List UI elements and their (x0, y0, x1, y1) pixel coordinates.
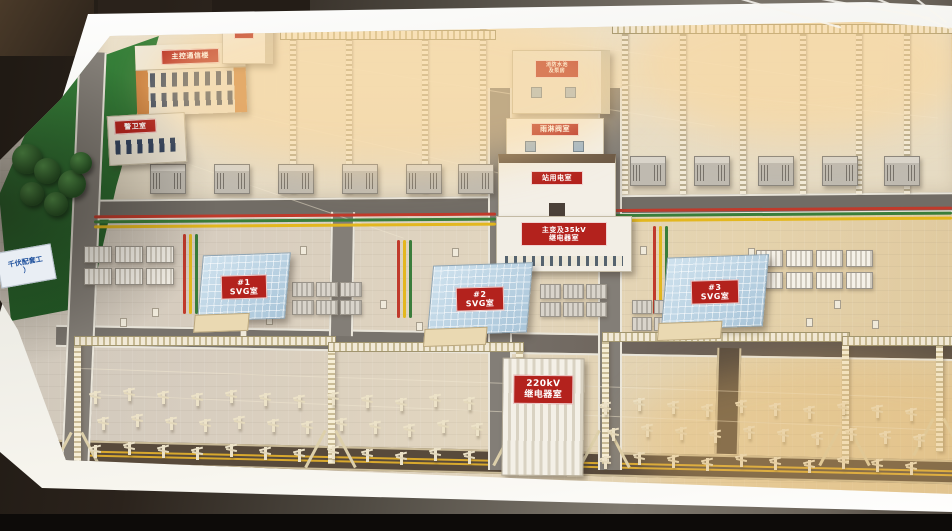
insulator-stand (374, 421, 377, 434)
insulator-stand (442, 420, 445, 433)
vertical-bus-green (409, 240, 412, 318)
insulator-stand (850, 428, 853, 441)
transformer-unit (342, 164, 378, 194)
door (549, 203, 565, 217)
building-svg-3: #3 SVG室 (661, 254, 769, 330)
insulator-stand (816, 432, 819, 445)
insulator-stand (910, 408, 913, 421)
vertical-bus-yellow (189, 234, 192, 314)
equipment-cabinet (152, 308, 159, 317)
insulator-stand (808, 406, 811, 419)
insulator-stand (128, 442, 131, 455)
vertical-bus-red (183, 234, 186, 314)
capacitor-rack (146, 268, 174, 285)
insulator-stand (264, 447, 267, 460)
insulator-stand (162, 445, 165, 458)
sign-220kv-line1: 220kV (526, 379, 560, 390)
insulator-stand (196, 447, 199, 460)
capacitor-rack (115, 268, 143, 285)
sign-svg1-line1: #1 (237, 278, 251, 288)
insulator-stand (638, 398, 641, 411)
insulator-stand (884, 431, 887, 444)
transformer-unit (214, 164, 250, 194)
insulator-stand (306, 421, 309, 434)
road-mid-connector (329, 212, 355, 336)
insulator-stand (638, 452, 641, 465)
gantry-post (74, 338, 81, 466)
capacitor-rack (586, 302, 607, 317)
project-nameplate-line2: ） (23, 265, 31, 274)
building-guard-room: 警卫室 (107, 112, 188, 166)
insulator-stand (238, 416, 241, 429)
insulator-stand (340, 418, 343, 431)
insulator-stand (230, 444, 233, 457)
tree (34, 158, 60, 184)
capacitor-rack (340, 300, 362, 315)
capacitor-rack (84, 246, 112, 263)
capacitor-rack (786, 250, 813, 267)
transformer-unit (458, 164, 494, 194)
building-fire-pool-pump: 消防水池 及泵房 (512, 50, 610, 114)
building-svg-2: #2 SVG室 (427, 262, 533, 336)
transformer-unit (822, 156, 858, 186)
insulator-stand (706, 458, 709, 471)
insulator-stand (434, 394, 437, 407)
background-floor (0, 514, 952, 531)
insulator-stand (842, 456, 845, 469)
insulator-stand (918, 434, 921, 447)
tree (70, 152, 92, 174)
insulator-stand (808, 460, 811, 473)
capacitor-rack (816, 272, 843, 289)
sign-svg-2: #2 SVG室 (456, 286, 505, 311)
capacitor-rack (632, 317, 652, 331)
capacitor-rack (540, 302, 561, 317)
capacitor-rack (540, 284, 561, 299)
gantry-post (936, 338, 943, 452)
tree (44, 192, 68, 216)
equipment-cabinet (416, 322, 423, 331)
transformer-unit (884, 156, 920, 186)
vertical-bus-green (195, 234, 198, 314)
gantry-post (602, 334, 609, 464)
insulator-stand (468, 451, 471, 464)
sign-guard-room: 警卫室 (114, 119, 157, 135)
sign-svg1-line2: SVG室 (230, 287, 259, 297)
window (525, 141, 536, 152)
insulator-stand (672, 455, 675, 468)
insulator-stand (910, 462, 913, 475)
sign-svg3-line1: #3 (708, 283, 722, 293)
equipment-cabinet (872, 320, 879, 329)
capacitor-rack (786, 272, 813, 289)
insulator-stand (774, 457, 777, 470)
insulator-stand (366, 449, 369, 462)
transformer-unit (406, 164, 442, 194)
insulator-stand (94, 445, 97, 458)
insulator-stand (94, 391, 97, 404)
transformer-unit (630, 156, 666, 186)
insulator-stand (672, 401, 675, 414)
lattice-tower (800, 26, 806, 194)
capacitor-rack (84, 268, 112, 285)
equipment-cabinet (806, 318, 813, 327)
insulator-stand (196, 393, 199, 406)
building-svg-1: #1 SVG室 (197, 252, 291, 321)
insulator-stand (774, 403, 777, 416)
lattice-tower (680, 26, 686, 194)
insulator-stand (434, 448, 437, 461)
insulator-stand (476, 423, 479, 436)
window (573, 141, 584, 152)
insulator-stand (298, 449, 301, 462)
capacitor-rack (586, 284, 607, 299)
gantry-leg (942, 418, 952, 456)
insulator-stand (366, 395, 369, 408)
capacitor-rack (316, 282, 338, 297)
insulator-stand (298, 395, 301, 408)
capacitor-rack (563, 284, 584, 299)
sign-svg3-line2: SVG室 (701, 292, 730, 302)
lattice-tower (740, 26, 746, 194)
insulator-stand (204, 419, 207, 432)
capacitor-rack (846, 250, 873, 267)
tree (20, 182, 44, 206)
sign-mv-relay: 主变及35kV 继电器室 (521, 222, 607, 246)
window-row (150, 91, 232, 108)
capacitor-rack (563, 302, 584, 317)
capacitor-rack (292, 282, 314, 297)
gantry-post (842, 336, 849, 462)
building-station-power-room: 站用电室 (498, 154, 616, 218)
sign-rain-valve-text: 雨淋阀室 (540, 125, 570, 133)
sign-guard-room-text: 警卫室 (124, 122, 147, 131)
insulator-stand (646, 424, 649, 437)
sign-station-power-text: 站用电室 (542, 174, 572, 182)
sign-mv-relay-line1: 主变及35kV (542, 226, 586, 234)
insulator-stand (408, 424, 411, 437)
equipment-cabinet (380, 300, 387, 309)
capacitor-rack (292, 300, 314, 315)
building-220kv-relay-room: 220kV 继电器室 (501, 358, 584, 477)
sign-main-control-text: 主控通信楼 (171, 52, 209, 61)
capacitor-rack (846, 272, 873, 289)
capacitor-rack (146, 246, 174, 263)
insulator-stand (170, 417, 173, 430)
sign-svg2-line1: #2 (473, 290, 487, 300)
insulator-stand (264, 393, 267, 406)
capacitor-rack (816, 250, 843, 267)
insulator-stand (612, 428, 615, 441)
vertical-bus-yellow (403, 240, 406, 318)
insulator-stand (102, 417, 105, 430)
insulator-stand (842, 402, 845, 415)
capacitor-rack (316, 300, 338, 315)
insulator-stand (272, 419, 275, 432)
sign-svg-3: #3 SVG室 (691, 279, 740, 304)
sign-station-power: 站用电室 (531, 171, 583, 185)
capacitor-rack (340, 282, 362, 297)
window (531, 87, 542, 98)
capacitor-rack (115, 246, 143, 263)
insulator-stand (714, 430, 717, 443)
sign-mv-relay-line2: 继电器室 (549, 234, 579, 242)
insulator-stand (400, 398, 403, 411)
equipment-cabinet (834, 300, 841, 309)
insulator-stand (468, 397, 471, 410)
insulator-stand (680, 427, 683, 440)
insulator-stand (332, 446, 335, 459)
insulator-stand (162, 391, 165, 404)
window-row (150, 71, 232, 88)
vertical-bus-red (397, 240, 400, 318)
sign-fire-line2: 及泵房 (549, 69, 566, 75)
sign-220kv-relay: 220kV 继电器室 (513, 375, 573, 405)
insulator-stand (230, 390, 233, 403)
equipment-cabinet (640, 246, 647, 255)
transformer-unit (694, 156, 730, 186)
transformer-unit (278, 164, 314, 194)
insulator-stand (400, 452, 403, 465)
insulator-stand (876, 405, 879, 418)
sign-main-control: 主控通信楼 (161, 48, 219, 65)
insulator-stand (748, 426, 751, 439)
insulator-stand (740, 400, 743, 413)
insulator-stand (706, 404, 709, 417)
sign-fire-pool-pump: 消防水池 及泵房 (535, 60, 579, 78)
insulator-stand (136, 414, 139, 427)
gantry-beam (74, 336, 336, 346)
sign-svg-1: #1 SVG室 (221, 274, 268, 299)
equipment-cabinet (120, 318, 127, 327)
insulator-stand (128, 388, 131, 401)
sign-rain-valve: 雨淋阀室 (531, 123, 579, 136)
sign-svg2-line2: SVG室 (466, 299, 495, 309)
window-row (115, 137, 180, 154)
insulator-stand (876, 459, 879, 472)
insulator-stand (740, 454, 743, 467)
insulator-stand (782, 429, 785, 442)
insulator-stand (332, 392, 335, 405)
substation-model-photo: 主控通信楼 警卫室 泵房 消防水池 及泵房 雨 (0, 0, 952, 531)
capacitor-rack (632, 300, 652, 314)
window (565, 87, 576, 98)
insulator-stand (604, 456, 607, 469)
transformer-unit (150, 164, 186, 194)
equipment-cabinet (452, 248, 459, 257)
model-ground: 主控通信楼 警卫室 泵房 消防水池 及泵房 雨 (0, 0, 952, 531)
busbar-yellow (94, 223, 496, 228)
transformer-unit (758, 156, 794, 186)
sign-220kv-line2: 继电器室 (524, 389, 562, 400)
insulator-stand (604, 402, 607, 415)
gantry-beam (842, 336, 952, 346)
equipment-cabinet (300, 246, 307, 255)
gantry-beam (602, 332, 850, 342)
